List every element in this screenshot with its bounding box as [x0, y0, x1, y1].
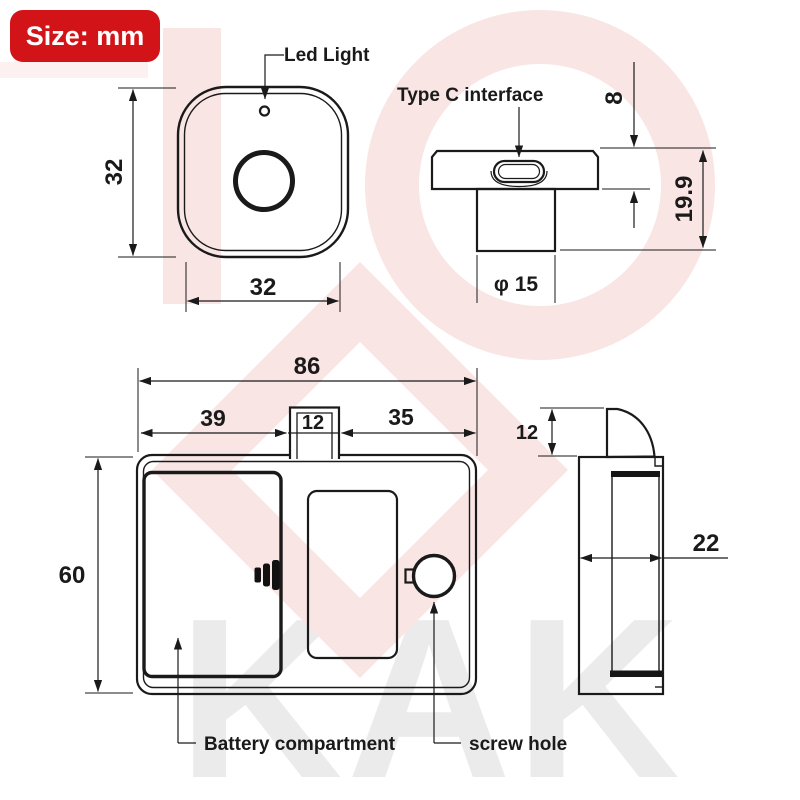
dim-right-section: 35: [388, 404, 414, 430]
dim-tab-width: 12: [302, 412, 324, 434]
fingerprint-ring: [236, 153, 293, 210]
side-plate-bottom-edge: [610, 671, 662, 678]
dim-left-section: 39: [200, 405, 226, 431]
led-dot: [260, 107, 269, 116]
side-outer-outline: [579, 457, 663, 694]
led-label: Led Light: [284, 45, 370, 66]
pink-logo-watermark: [0, 28, 688, 678]
dim-front-height: 32: [101, 159, 128, 186]
side-plate-top-edge: [611, 471, 660, 477]
front-view: Led Light 32 32: [101, 45, 370, 312]
side-inner-outline: [612, 472, 659, 676]
led-leader-line: [265, 55, 284, 99]
dim-cap-height: 8: [601, 91, 628, 104]
dim-total-height: 19.9: [671, 176, 698, 223]
dim-latch-height: 12: [516, 422, 538, 444]
size-badge: Size: mm: [10, 10, 160, 62]
cap-outline: [432, 151, 598, 189]
cylinder-outline: [477, 189, 555, 251]
latch-bolt: [607, 409, 655, 457]
diagram-page: KAK Led Light: [0, 0, 800, 800]
screw-label: screw hole: [469, 734, 567, 755]
battery-label: Battery compartment: [204, 734, 396, 755]
dim-front-width: 32: [250, 274, 277, 301]
screw-hole-circle: [414, 556, 455, 597]
dim-depth: 22: [693, 530, 720, 557]
usb-c-port-inner: [499, 165, 540, 179]
technical-drawing: Led Light 32 32 Type C interface: [0, 0, 800, 800]
size-badge-text: Size: mm: [26, 21, 145, 52]
dim-cylinder-diameter: φ 15: [494, 273, 539, 296]
dim-body-width: 86: [294, 353, 321, 380]
dim-body-height: 60: [59, 562, 86, 589]
side-top-step: [655, 457, 663, 466]
type-c-label: Type C interface: [397, 85, 543, 106]
